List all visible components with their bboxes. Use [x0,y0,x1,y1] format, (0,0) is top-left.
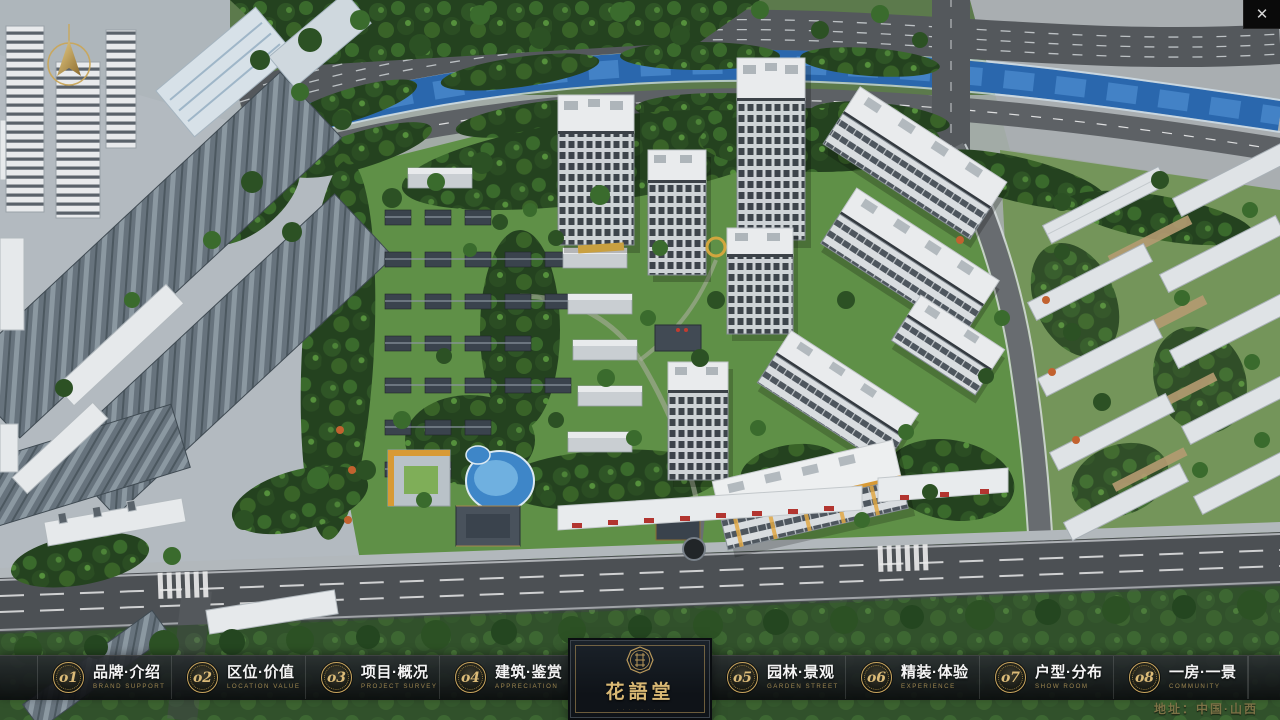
nav-item-room-view[interactable]: o8 一房·一景 COMMUNITY [1114,656,1248,699]
close-icon: ✕ [1256,5,1269,23]
nav-label-en: PROJECT SURVEY [361,683,430,689]
nav-badge-03: o3 [321,662,352,693]
nav-label-en: EXPERIENCE [901,683,960,689]
brand-logo-panel[interactable]: 花語堂 · · · · · · · · [570,640,710,718]
nav-label-cn: 精装·体验 [901,665,969,681]
close-button[interactable]: ✕ [1243,0,1280,29]
nav-label-cn: 品牌·介绍 [93,665,171,681]
nav-badge-08: o8 [1129,662,1160,693]
nav-gutter-left [0,656,38,699]
nav-item-architecture[interactable]: o4 建筑·鉴赏 APPRECIATION [440,656,574,699]
nav-label-cn: 户型·分布 [1035,665,1103,681]
compass-icon [38,22,100,99]
nav-gutter-right [1248,656,1280,699]
nav-badge-06: o6 [861,662,892,693]
nav-badge-05: o5 [727,662,758,693]
nav-label-cn: 园林·景观 [767,665,845,681]
nav-badge-04: o4 [455,662,486,693]
nav-item-garden-landscape[interactable]: o5 园林·景观 GARDEN STREET [712,656,846,699]
nav-label-cn: 建筑·鉴赏 [495,665,567,681]
brand-seal-icon [625,645,655,675]
nav-badge-01: o1 [53,662,84,693]
nav-item-floorplan-distribution[interactable]: o7 户型·分布 SHOW ROOM [980,656,1114,699]
nav-item-location-value[interactable]: o2 区位·价值 LOCATION VALUE [172,656,306,699]
nav-label-cn: 一房·一景 [1169,665,1237,681]
nav-label-en: COMMUNITY [1169,683,1228,689]
nav-label-cn: 项目·概况 [361,665,439,681]
nav-item-project-survey[interactable]: o3 项目·概况 PROJECT SURVEY [306,656,440,699]
nav-label-en: BRAND SUPPORT [93,683,162,689]
nav-label-en: APPRECIATION [495,683,558,689]
nav-item-brand-intro[interactable]: o1 品牌·介绍 BRAND SUPPORT [38,656,172,699]
nav-label-en: LOCATION VALUE [227,683,296,689]
masterplan-3d-view [0,0,1280,720]
nav-badge-07: o7 [995,662,1026,693]
nav-label-en: SHOW ROOM [1035,683,1094,689]
nav-label-cn: 区位·价值 [227,665,305,681]
brand-tagline: · · · · · · · · [617,708,663,713]
nav-item-interior-experience[interactable]: o6 精装·体验 EXPERIENCE [846,656,980,699]
nav-label-en: GARDEN STREET [767,683,836,689]
brand-name: 花語堂 [605,677,674,704]
project-address: 地址：中国·山西 [1154,700,1258,717]
nav-badge-02: o2 [187,662,218,693]
